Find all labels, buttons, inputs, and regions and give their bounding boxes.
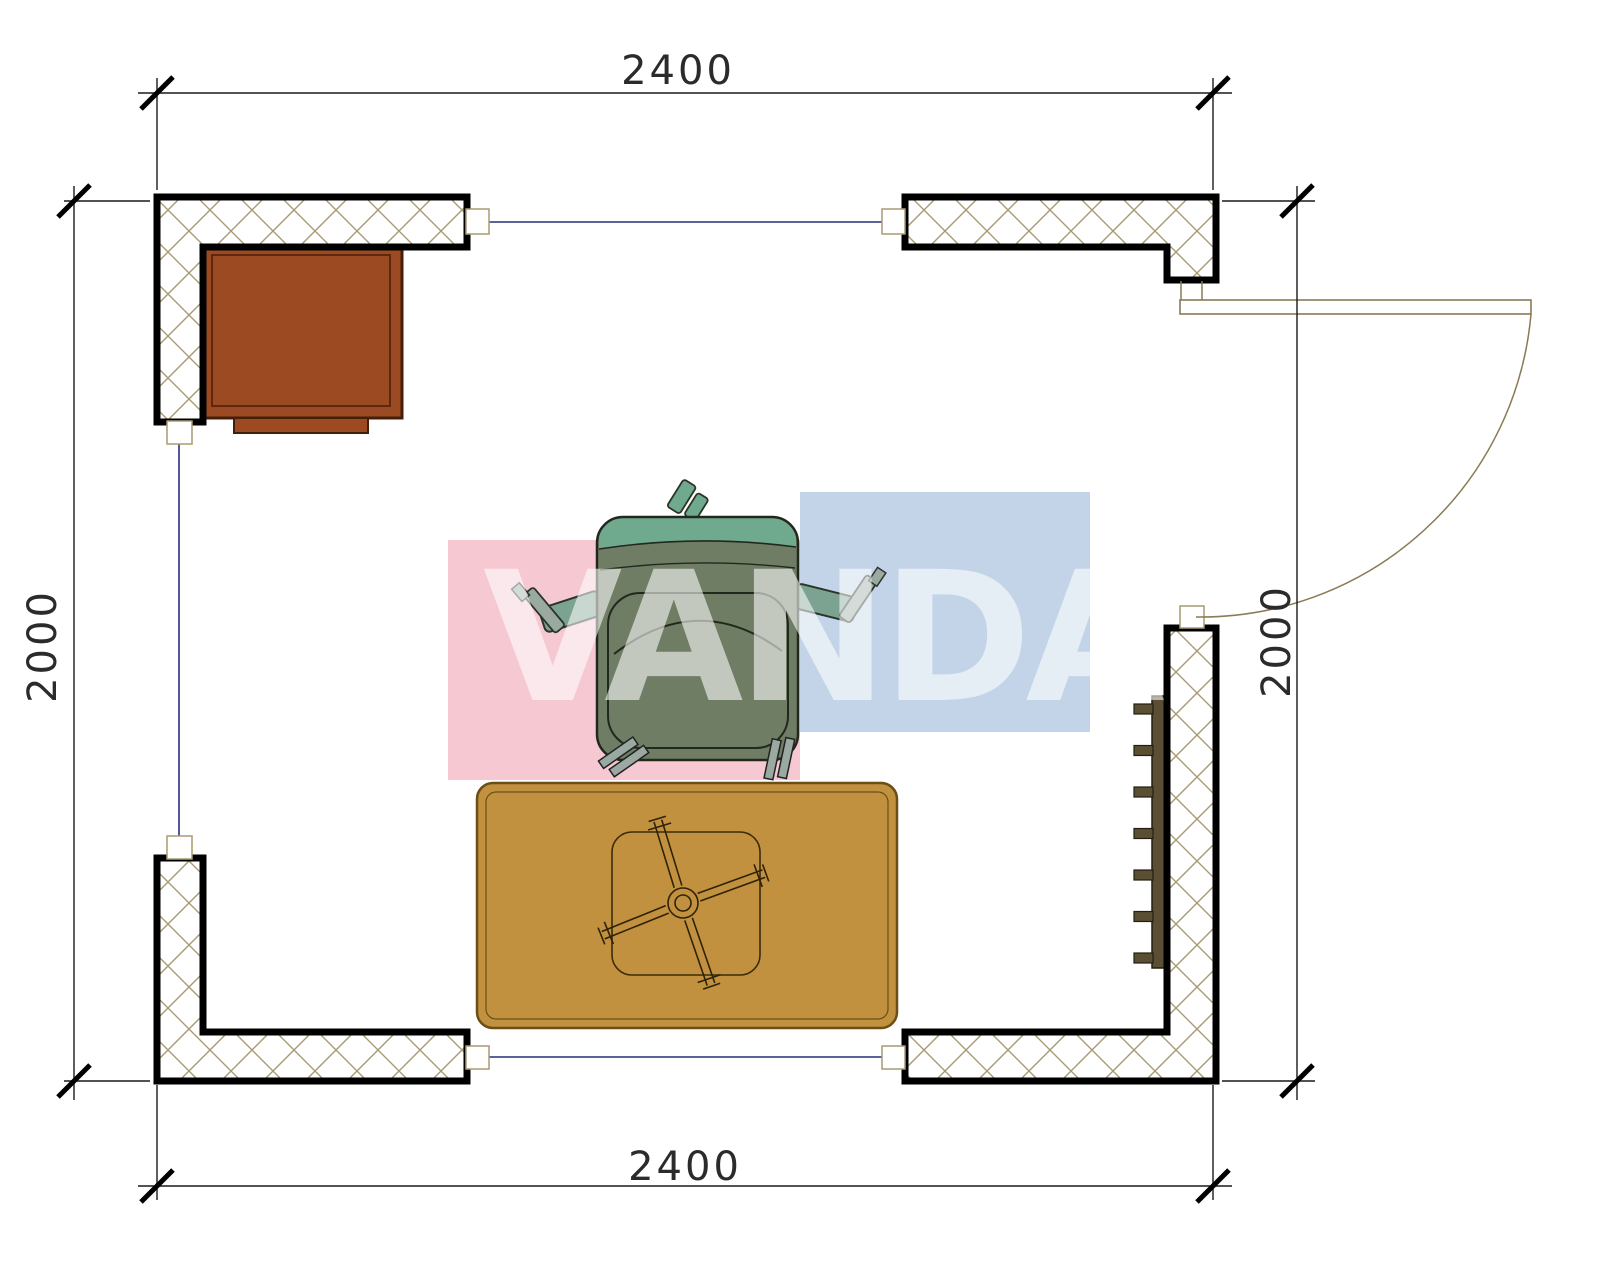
floor-plan-drawing: 2400 2400 2000 2000	[0, 0, 1600, 1280]
cabinet-tab	[234, 418, 368, 433]
connector-bottom-right-wall	[882, 1046, 905, 1069]
connector-top-right-wall	[882, 209, 905, 234]
connector-left-upper	[167, 421, 192, 444]
door-leaf	[1180, 300, 1531, 314]
dim-label-left: 2000	[20, 589, 66, 703]
door-swing-arc	[1196, 314, 1531, 617]
door	[1180, 281, 1531, 617]
cabinet-body	[200, 243, 402, 418]
dim-label-right: 2000	[1254, 584, 1300, 698]
wall-bottom-left	[157, 858, 467, 1081]
cabinet	[200, 243, 402, 433]
watermark-text: VANDA	[483, 534, 1164, 743]
connector-bottom-left-wall	[466, 1046, 489, 1069]
dim-label-top: 2400	[621, 48, 735, 94]
dim-label-bottom: 2400	[628, 1144, 742, 1190]
wall-top-right	[905, 197, 1216, 280]
connector-top-left-wall	[466, 209, 489, 234]
floor-plan-canvas: 2400 2400 2000 2000	[0, 0, 1600, 1280]
connector-left-lower	[167, 836, 192, 859]
